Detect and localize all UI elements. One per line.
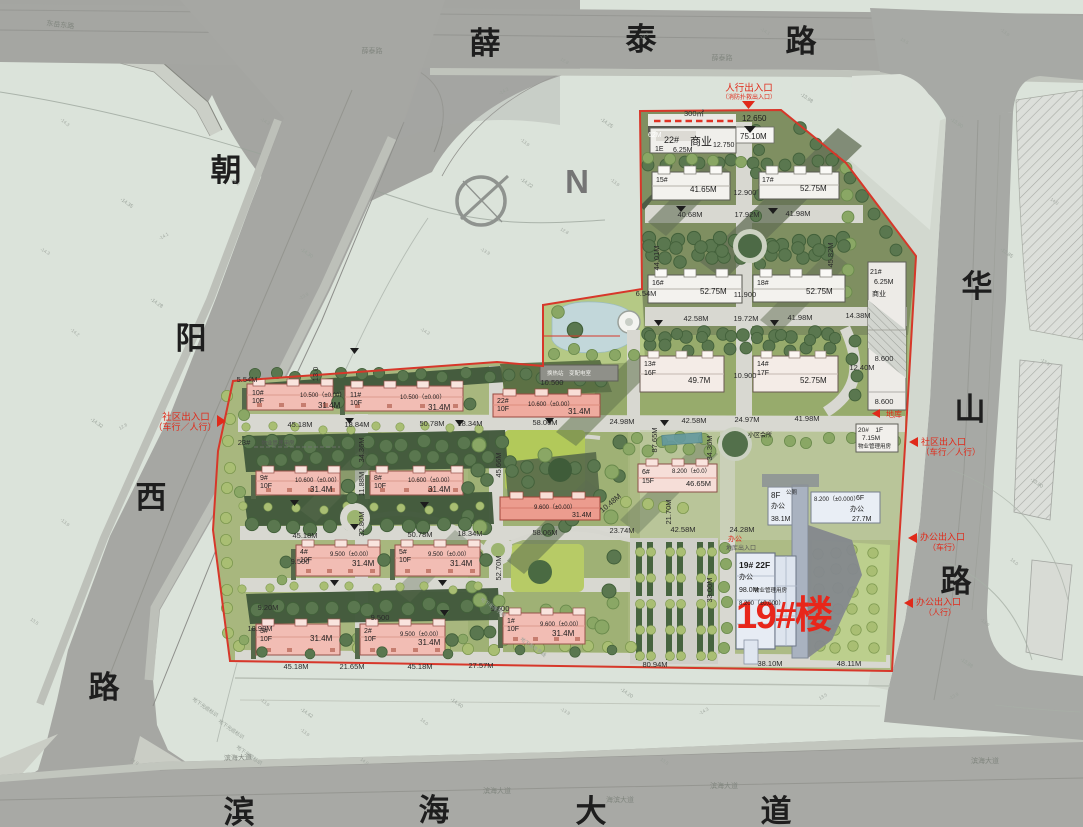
svg-text:11#: 11#	[350, 392, 361, 399]
svg-text:48.11M: 48.11M	[837, 659, 861, 668]
svg-text:西: 西	[136, 480, 167, 515]
svg-text:24.28M: 24.28M	[729, 525, 754, 534]
svg-text:10F: 10F	[364, 636, 376, 643]
svg-text:12.40M: 12.40M	[849, 363, 874, 372]
svg-text:14.38M: 14.38M	[845, 311, 870, 320]
svg-text:6.25M: 6.25M	[874, 279, 894, 286]
svg-text:13.0: 13.0	[311, 367, 320, 382]
svg-text:45.66M: 45.66M	[494, 452, 503, 477]
svg-text:80.94M: 80.94M	[642, 660, 667, 669]
svg-text:10.600（±0.00）: 10.600（±0.00）	[295, 477, 340, 484]
svg-text:31.4M: 31.4M	[428, 403, 451, 412]
svg-text:31.4M: 31.4M	[572, 512, 592, 519]
svg-text:12.750: 12.750	[713, 142, 735, 149]
svg-text:小区会所: 小区会所	[748, 431, 772, 439]
svg-text:阳: 阳	[176, 321, 207, 356]
svg-text:45.18M: 45.18M	[407, 662, 432, 671]
svg-text:31.4M: 31.4M	[552, 629, 575, 638]
svg-text:52.70M: 52.70M	[494, 555, 503, 580]
svg-text:10F: 10F	[374, 483, 386, 490]
svg-text:12.900: 12.900	[734, 188, 757, 197]
svg-text:42.58M: 42.58M	[683, 314, 708, 323]
svg-text:31.4M: 31.4M	[318, 401, 341, 410]
svg-text:6F: 6F	[856, 495, 864, 502]
svg-text:41.98M: 41.98M	[787, 313, 812, 322]
svg-text:路: 路	[786, 24, 818, 59]
svg-text:42.58M: 42.58M	[681, 416, 706, 425]
svg-text:（车行／人行）: （车行／人行）	[921, 447, 981, 457]
svg-text:华: 华	[962, 269, 993, 304]
svg-text:14#: 14#	[757, 361, 769, 368]
svg-text:27.57M: 27.57M	[468, 661, 493, 670]
svg-text:9.500（±0.00）: 9.500（±0.00）	[428, 551, 470, 558]
svg-text:办公出入口: 办公出入口	[920, 531, 965, 542]
svg-text:13#: 13#	[644, 361, 656, 368]
svg-text:10F: 10F	[260, 483, 272, 490]
svg-text:45.18M: 45.18M	[287, 420, 312, 429]
svg-text:10.600（±0.00）: 10.600（±0.00）	[408, 477, 453, 484]
svg-text:9.600（±0.00）: 9.600（±0.00）	[540, 621, 582, 628]
svg-text:商业: 商业	[690, 134, 712, 148]
svg-text:8F: 8F	[771, 491, 780, 500]
svg-text:10#: 10#	[252, 390, 264, 397]
svg-text:路: 路	[89, 670, 121, 705]
svg-text:办公出入口: 办公出入口	[916, 596, 961, 607]
svg-text:12.650: 12.650	[742, 114, 767, 123]
svg-text:10.500（±0.00）: 10.500（±0.00）	[300, 392, 345, 399]
svg-text:10F: 10F	[399, 557, 411, 564]
svg-text:滨海大道: 滨海大道	[971, 756, 999, 765]
svg-text:换热站 变配电室: 换热站 变配电室	[547, 369, 592, 377]
svg-text:（车行／人行）: （车行／人行）	[153, 421, 216, 432]
svg-text:34.36M: 34.36M	[357, 437, 366, 462]
svg-text:18.34M: 18.34M	[457, 529, 482, 538]
svg-text:20# 1F: 20# 1F	[858, 427, 883, 434]
svg-text:23.74M: 23.74M	[609, 526, 634, 535]
svg-text:24.98M: 24.98M	[609, 417, 634, 426]
svg-text:10.900: 10.900	[734, 371, 757, 380]
svg-text:9.500: 9.500	[371, 613, 390, 622]
svg-text:10.500（±0.00）: 10.500（±0.00）	[400, 394, 445, 401]
svg-text:9.500（±0.00）: 9.500（±0.00）	[400, 631, 442, 638]
svg-text:办公: 办公	[850, 504, 864, 513]
svg-text:10.600（±0.00）: 10.600（±0.00）	[528, 401, 573, 408]
svg-text:75.10M: 75.10M	[740, 132, 767, 141]
svg-text:9.500（±0.00）: 9.500（±0.00）	[330, 551, 372, 558]
svg-text:300㎡: 300㎡	[684, 109, 705, 118]
svg-text:38.1M: 38.1M	[771, 516, 791, 523]
svg-text:52.75M: 52.75M	[806, 287, 833, 296]
svg-text:10F: 10F	[300, 557, 312, 564]
svg-text:10F: 10F	[497, 406, 509, 413]
svg-text:物业管理用房: 物业管理用房	[754, 586, 788, 594]
svg-text:10F: 10F	[350, 400, 362, 407]
svg-text:41.98M: 41.98M	[794, 414, 819, 423]
svg-text:（人行）: （人行）	[924, 607, 956, 617]
svg-text:9.20M: 9.20M	[258, 603, 279, 612]
svg-text:1#: 1#	[507, 618, 515, 625]
svg-text:8#: 8#	[374, 475, 382, 482]
svg-text:物业管理用房: 物业管理用房	[261, 439, 295, 447]
svg-text:道: 道	[761, 794, 792, 827]
svg-text:31.4M: 31.4M	[418, 638, 441, 647]
svg-text:社区出入口: 社区出入口	[921, 436, 966, 447]
svg-text:41.98M: 41.98M	[785, 209, 810, 218]
svg-text:10F: 10F	[507, 626, 519, 633]
svg-text:办公: 办公	[739, 572, 753, 581]
svg-text:海滨大道: 海滨大道	[606, 795, 634, 804]
svg-text:办公: 办公	[771, 501, 785, 510]
svg-text:21#: 21#	[870, 269, 882, 276]
svg-text:物业管理用房: 物业管理用房	[858, 442, 892, 450]
svg-text:34.36M: 34.36M	[705, 435, 714, 460]
svg-text:16#: 16#	[652, 280, 664, 287]
svg-text:10.500: 10.500	[541, 378, 564, 387]
svg-text:87.65M: 87.65M	[650, 427, 659, 452]
svg-text:50.78M: 50.78M	[419, 419, 444, 428]
svg-text:地库: 地库	[886, 409, 902, 419]
svg-text:7.15M: 7.15M	[862, 435, 880, 442]
svg-text:46.65M: 46.65M	[686, 479, 711, 488]
svg-text:38.10M: 38.10M	[757, 659, 782, 668]
svg-text:23#: 23#	[238, 438, 251, 447]
svg-text:15#: 15#	[656, 177, 668, 184]
svg-text:11.900: 11.900	[734, 290, 756, 299]
svg-text:52.75M: 52.75M	[700, 287, 727, 296]
svg-text:8.600: 8.600	[875, 354, 894, 363]
svg-text:6.25M: 6.25M	[673, 147, 693, 154]
svg-text:薛泰路: 薛泰路	[362, 46, 383, 55]
svg-text:（消防扑救出入口）: （消防扑救出入口）	[722, 93, 776, 101]
svg-text:41.65M: 41.65M	[690, 185, 717, 194]
svg-text:6.54M: 6.54M	[636, 289, 657, 298]
svg-text:办公: 办公	[728, 534, 742, 543]
svg-text:17.92M: 17.92M	[734, 210, 759, 219]
svg-text:45.18M: 45.18M	[283, 662, 308, 671]
svg-text:45.82M: 45.82M	[826, 242, 835, 267]
svg-text:50.78M: 50.78M	[407, 530, 432, 539]
svg-text:地库出入口: 地库出入口	[726, 544, 756, 552]
svg-text:大: 大	[576, 794, 607, 827]
svg-text:21.65M: 21.65M	[339, 662, 364, 671]
svg-text:42.58M: 42.58M	[670, 525, 695, 534]
svg-text:山: 山	[955, 392, 986, 427]
svg-text:31.4M: 31.4M	[428, 485, 451, 494]
svg-text:17#: 17#	[762, 177, 774, 184]
svg-text:31.4M: 31.4M	[310, 634, 333, 643]
svg-text:49.7M: 49.7M	[688, 376, 711, 385]
svg-text:19.72M: 19.72M	[733, 314, 758, 323]
svg-text:5#: 5#	[399, 549, 407, 556]
svg-text:8.200（±0.000）: 8.200（±0.000）	[739, 600, 784, 607]
svg-text:16F: 16F	[644, 370, 656, 377]
svg-text:人行出入口: 人行出入口	[725, 82, 773, 94]
svg-text:海: 海	[419, 793, 450, 827]
svg-text:58.06M: 58.06M	[532, 528, 557, 537]
svg-text:19# 22F: 19# 22F	[739, 560, 770, 570]
svg-text:24.97M: 24.97M	[734, 415, 759, 424]
svg-text:62M: 62M	[648, 132, 662, 139]
svg-text:4#: 4#	[300, 549, 308, 556]
svg-text:52.75M: 52.75M	[800, 376, 827, 385]
svg-text:滨海大道: 滨海大道	[710, 781, 738, 790]
svg-text:52.75M: 52.75M	[800, 184, 827, 193]
svg-text:N: N	[565, 163, 589, 200]
svg-text:8.200（±0.000）: 8.200（±0.000）	[814, 496, 859, 503]
svg-text:5.54M: 5.54M	[237, 375, 258, 384]
svg-text:薛: 薛	[470, 26, 501, 61]
svg-text:滨: 滨	[224, 795, 255, 827]
svg-text:2#: 2#	[364, 628, 372, 635]
svg-text:31.4M: 31.4M	[568, 407, 591, 416]
svg-text:31.4M: 31.4M	[450, 559, 473, 568]
svg-text:9.600（±0.00）: 9.600（±0.00）	[534, 504, 576, 511]
svg-text:8.200（±0.0）: 8.200（±0.0）	[672, 468, 711, 475]
svg-text:公厕: 公厕	[786, 489, 798, 496]
svg-text:22#: 22#	[497, 398, 509, 405]
svg-text:45.18M: 45.18M	[292, 531, 317, 540]
svg-text:22#: 22#	[664, 135, 679, 145]
svg-text:9#: 9#	[260, 475, 268, 482]
svg-text:8.600: 8.600	[875, 397, 894, 406]
svg-text:31.4M: 31.4M	[352, 559, 375, 568]
svg-text:6#: 6#	[642, 469, 650, 476]
svg-text:33.00M: 33.00M	[705, 577, 714, 602]
svg-text:路: 路	[941, 564, 973, 599]
svg-text:27.7M: 27.7M	[852, 516, 872, 523]
svg-text:10F: 10F	[260, 636, 272, 643]
svg-text:58.06M: 58.06M	[532, 418, 557, 427]
svg-text:10F: 10F	[252, 398, 264, 405]
svg-text:17F: 17F	[757, 370, 769, 377]
svg-text:（车行）: （车行）	[928, 542, 960, 552]
svg-text:3#: 3#	[260, 628, 268, 635]
svg-text:11.88M: 11.88M	[357, 472, 366, 496]
svg-text:薛泰路: 薛泰路	[712, 53, 733, 62]
svg-text:31.4M: 31.4M	[310, 485, 333, 494]
svg-text:15F: 15F	[642, 478, 654, 485]
svg-text:商业: 商业	[872, 289, 886, 298]
svg-text:滨海大道: 滨海大道	[483, 786, 511, 795]
svg-text:21.70M: 21.70M	[664, 499, 673, 524]
svg-text:1E: 1E	[655, 146, 664, 153]
svg-text:44.01M: 44.01M	[652, 245, 661, 270]
svg-text:18#: 18#	[757, 280, 769, 287]
